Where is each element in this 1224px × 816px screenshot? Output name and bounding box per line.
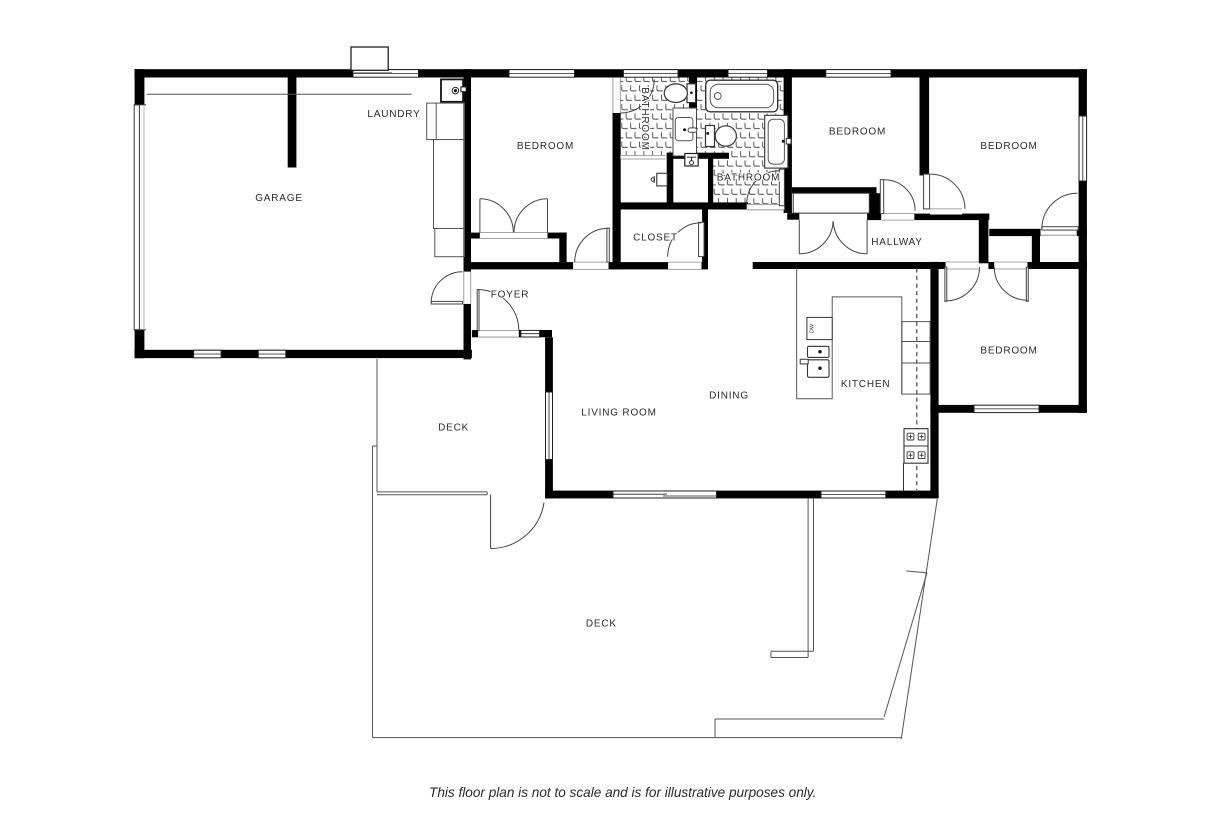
svg-text:HALLWAY: HALLWAY [871,237,923,248]
svg-text:DECK: DECK [438,423,469,434]
svg-text:CLOSET: CLOSET [633,233,678,244]
svg-text:FOYER: FOYER [491,290,529,301]
svg-text:KITCHEN: KITCHEN [841,379,891,390]
svg-text:DINING: DINING [709,391,749,402]
svg-text:BEDROOM: BEDROOM [829,127,886,138]
svg-text:LIVING ROOM: LIVING ROOM [581,408,656,419]
svg-text:BATHROOM: BATHROOM [639,87,650,150]
svg-text:BEDROOM: BEDROOM [980,141,1037,152]
svg-text:LAUNDRY: LAUNDRY [367,109,420,120]
svg-text:BEDROOM: BEDROOM [980,345,1037,356]
svg-text:BEDROOM: BEDROOM [517,141,574,152]
svg-text:BATHROOM: BATHROOM [717,173,780,184]
svg-text:DECK: DECK [586,619,617,630]
svg-text:GARAGE: GARAGE [255,193,303,204]
svg-text:This floor plan is not to scal: This floor plan is not to scale and is f… [429,785,816,800]
svg-text:DW: DW [810,323,816,333]
